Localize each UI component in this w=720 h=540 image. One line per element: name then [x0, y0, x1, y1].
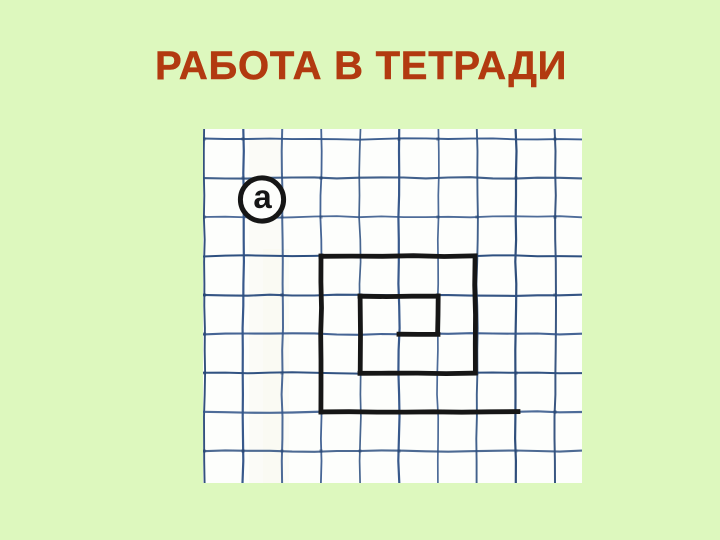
svg-text:а: а: [253, 178, 272, 215]
